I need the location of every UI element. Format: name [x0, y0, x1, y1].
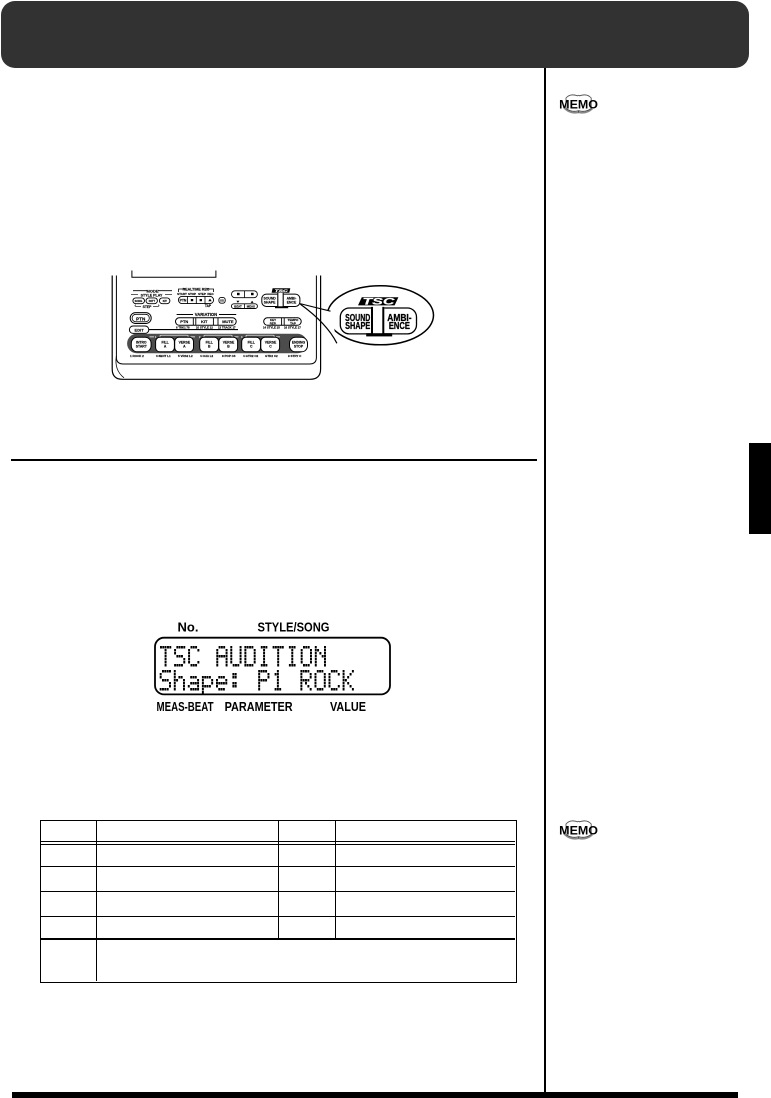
svg-text:VARIATION: VARIATION	[195, 312, 217, 317]
svg-text:STOP: STOP	[188, 292, 196, 296]
svg-text:16 STYLE 17: 16 STYLE 17	[284, 325, 301, 329]
svg-text:STYLE PLAY: STYLE PLAY	[141, 293, 163, 297]
svg-text:MEAS-BEAT: MEAS-BEAT	[157, 699, 214, 714]
svg-text:START: START	[177, 292, 187, 296]
svg-text:9 POP C3: 9 POP C3	[222, 354, 236, 358]
svg-text:KIT: KIT	[163, 299, 168, 303]
svg-text:STEP: STEP	[143, 305, 153, 309]
svg-text:TSC: TSC	[362, 297, 396, 308]
svg-text:KIT: KIT	[201, 319, 208, 324]
svg-text:6 TRK1 78: 6 TRK1 78	[176, 325, 190, 329]
svg-text:3 8BNT L1: 3 8BNT L1	[156, 354, 171, 358]
svg-text:START: START	[136, 345, 148, 349]
svg-text:MEAS: MEAS	[247, 304, 255, 308]
svg-text:PTN: PTN	[136, 317, 146, 322]
svg-text:1 ROCK 2: 1 ROCK 2	[130, 354, 144, 358]
svg-text:PTN: PTN	[180, 319, 188, 324]
svg-text:SHAPE: SHAPE	[264, 301, 276, 305]
svg-text:ENCE: ENCE	[287, 301, 297, 305]
svg-text:TAP: TAP	[205, 304, 212, 308]
svg-text:MUTE: MUTE	[222, 319, 234, 324]
svg-text:EDIT: EDIT	[135, 327, 145, 332]
svg-text:4 CHA L2: 4 CHA L2	[200, 354, 214, 358]
svg-text:SG: SG	[220, 299, 224, 303]
svg-text:ENCE: ENCE	[389, 321, 410, 332]
svg-text:PTN: PTN	[180, 299, 187, 303]
svg-text:No.: No.	[178, 620, 199, 635]
svg-text:MEMO: MEMO	[559, 97, 598, 111]
svg-text:5 VRS2 L2: 5 VRS2 L2	[178, 354, 193, 358]
svg-text:10 STYLE 12: 10 STYLE 12	[196, 325, 213, 329]
svg-text:STEP: STEP	[198, 292, 206, 296]
svg-text:PATT: PATT	[149, 299, 156, 303]
svg-text:REALTIME REC: REALTIME REC	[183, 288, 210, 292]
svg-text:SONG: SONG	[135, 299, 143, 303]
svg-text:STYLE/SONG: STYLE/SONG	[258, 620, 330, 635]
svg-text:BEAT: BEAT	[234, 304, 242, 308]
svg-text:GTR2 C2: GTR2 C2	[265, 354, 278, 358]
svg-text:13 TRACK 17: 13 TRACK 17	[218, 325, 236, 329]
svg-text:TSC: TSC	[275, 288, 288, 293]
svg-text:9 STRY C: 9 STRY C	[288, 354, 302, 358]
svg-text:4 GTR2 C2: 4 GTR2 C2	[243, 354, 259, 358]
svg-text:MEMO: MEMO	[559, 823, 598, 837]
svg-text:REC: REC	[207, 292, 214, 296]
svg-text:VALUE: VALUE	[330, 699, 366, 714]
svg-text:SHAPE: SHAPE	[345, 321, 371, 332]
svg-text:14 STYLE 15: 14 STYLE 15	[263, 325, 280, 329]
svg-text:STOP: STOP	[294, 345, 304, 349]
svg-text:PARAMETER: PARAMETER	[225, 699, 294, 714]
